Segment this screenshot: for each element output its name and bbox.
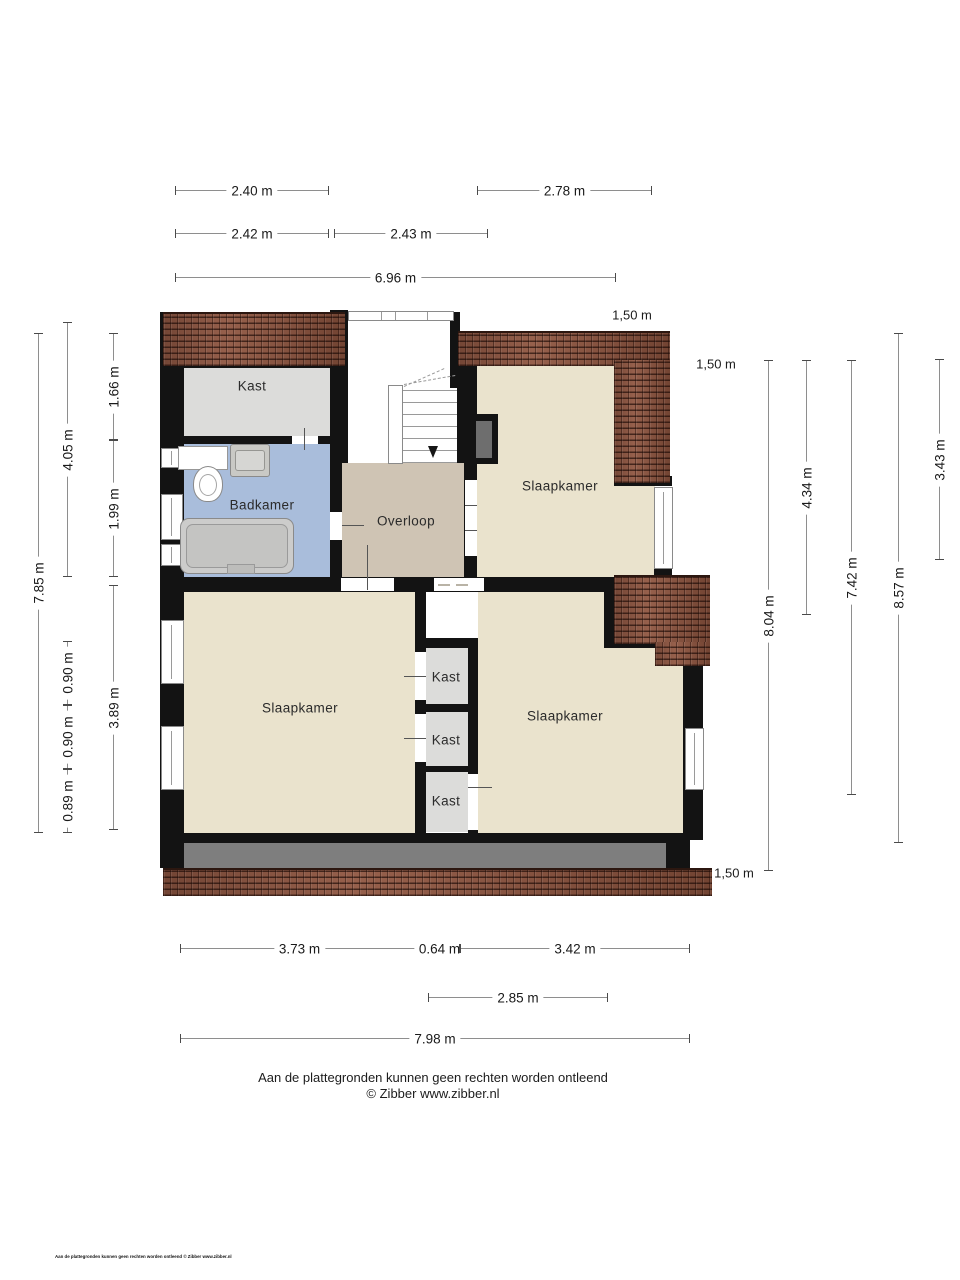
roof-band-se-notch	[614, 575, 710, 644]
dim-bottom-3_42: 3.42 m	[460, 948, 690, 949]
dim-left-7_85: 7.85 m	[38, 333, 39, 833]
dim-left-0_89: 0.89 m	[67, 769, 68, 833]
roof-dim-top: 1,50 m	[612, 308, 652, 323]
room-label-badkamer: Badkamer	[230, 498, 295, 513]
dim-left-3_89: 3.89 m	[113, 585, 114, 830]
room-label-slaapkamer-ne: Slaapkamer	[522, 479, 598, 494]
window-pane	[171, 625, 172, 679]
room-label-kast-2: Kast	[432, 733, 461, 748]
wall-kast-divider-2	[426, 766, 478, 772]
window-pane	[171, 451, 172, 465]
wall-exterior-bottom	[160, 833, 690, 843]
stairs-down-arrow-icon	[428, 446, 438, 458]
dim-top-2_40: 2.40 m	[175, 190, 329, 191]
kast-3-door-opening	[468, 774, 478, 830]
wall-dormer-block-left	[160, 833, 184, 868]
footer-copyright: © Zibber www.zibber.nl	[366, 1086, 499, 1101]
fineprint-disclaimer: Aan de plattegronden kunnen geen rechten…	[55, 1254, 232, 1259]
dim-right-8_57: 8.57 m	[898, 333, 899, 843]
door-frame-tick	[465, 505, 477, 506]
dim-bottom-0_64: 0.64 m	[419, 948, 460, 949]
dim-right-8_04: 8.04 m	[768, 360, 769, 871]
stair-top-window	[348, 311, 454, 321]
dormer-flat-roof	[184, 843, 666, 868]
kast-2-door-leaf	[404, 738, 426, 739]
sliding-door-dash	[456, 584, 468, 586]
dim-top-2_78: 2.78 m	[477, 190, 652, 191]
badkamer-door-leaf	[342, 525, 364, 526]
roof-band-right	[614, 360, 670, 483]
wall-dormer-block-right	[666, 833, 690, 868]
badkamer-door-opening	[330, 512, 342, 540]
dim-left-4_05: 4.05 m	[67, 322, 68, 577]
room-label-kast-1: Kast	[432, 670, 461, 685]
toilet-bowl	[199, 474, 217, 496]
dim-left-0_90-b: 0.90 m	[67, 705, 68, 769]
dim-bottom-7_98: 7.98 m	[180, 1038, 690, 1039]
window-mullion	[395, 312, 396, 320]
bathtub-faucet	[227, 564, 255, 574]
overloop-ne-door-opening	[465, 480, 477, 556]
window-pane	[663, 492, 664, 564]
bathtub-inner	[186, 524, 288, 568]
stairs-handrail	[388, 385, 403, 464]
roof-band-se-notch-lower	[655, 642, 710, 666]
slaapkamer-sw-window-2	[161, 726, 184, 790]
dim-right-7_42: 7.42 m	[851, 360, 852, 795]
dim-top-2_43: 2.43 m	[334, 233, 488, 234]
overloop-sw-door-leaf	[367, 545, 368, 590]
window-pane	[171, 731, 172, 785]
kast-attic-door-opening	[292, 436, 318, 444]
kast-1-door-leaf	[404, 676, 426, 677]
room-label-slaapkamer-sw: Slaapkamer	[262, 701, 338, 716]
slaapkamer-sw-window-1	[161, 620, 184, 684]
roof-dim-right: 1,50 m	[696, 357, 736, 372]
wall-sw-kast-divider	[415, 592, 426, 833]
window-pane	[171, 547, 172, 563]
window-pane	[171, 498, 172, 536]
toilet-icon	[193, 466, 223, 502]
dim-top-2_42: 2.42 m	[175, 233, 329, 234]
kast-attic-door-leaf	[304, 428, 305, 450]
floor-slaapkamer-ne-lower	[477, 483, 655, 577]
floorplan-page: Kast Badkamer Overloop Slaapkamer Slaapk…	[0, 0, 960, 1280]
slaapkamer-se-window	[685, 728, 704, 790]
roof-band-top-left	[163, 312, 345, 366]
room-label-slaapkamer-se: Slaapkamer	[527, 709, 603, 724]
floor-kast-attic	[172, 364, 338, 440]
dim-right-4_34: 4.34 m	[806, 360, 807, 615]
dim-bottom-2_85: 2.85 m	[428, 997, 608, 998]
roof-dim-bottom: 1,50 m	[714, 866, 754, 881]
dim-right-3_43: 3.43 m	[939, 359, 940, 560]
sliding-door-dash	[438, 584, 450, 586]
room-label-kast-3: Kast	[432, 794, 461, 809]
window-mullion	[427, 312, 428, 320]
dim-left-0_90-a: 0.90 m	[67, 641, 68, 705]
roof-band-bottom	[163, 868, 712, 896]
dim-left-1_99: 1.99 m	[113, 440, 114, 577]
kast-3-door-leaf	[468, 787, 492, 788]
bathtub-icon	[180, 518, 294, 574]
dim-top-6_96: 6.96 m	[175, 277, 616, 278]
dim-left-1_66: 1.66 m	[113, 333, 114, 440]
door-frame-tick	[465, 530, 477, 531]
window-pane	[694, 733, 695, 785]
sink-icon	[230, 444, 270, 477]
dim-bottom-3_73: 3.73 m	[180, 948, 419, 949]
wall-kast-divider-1	[426, 704, 478, 712]
footer-disclaimer: Aan de plattegronden kunnen geen rechten…	[258, 1070, 608, 1085]
slaapkamer-ne-window	[654, 487, 673, 569]
room-label-overloop: Overloop	[377, 514, 435, 529]
room-label-kast-attic: Kast	[238, 379, 267, 394]
sink-basin	[235, 450, 265, 471]
window-mullion	[381, 312, 382, 320]
chimney-flue	[476, 421, 492, 458]
